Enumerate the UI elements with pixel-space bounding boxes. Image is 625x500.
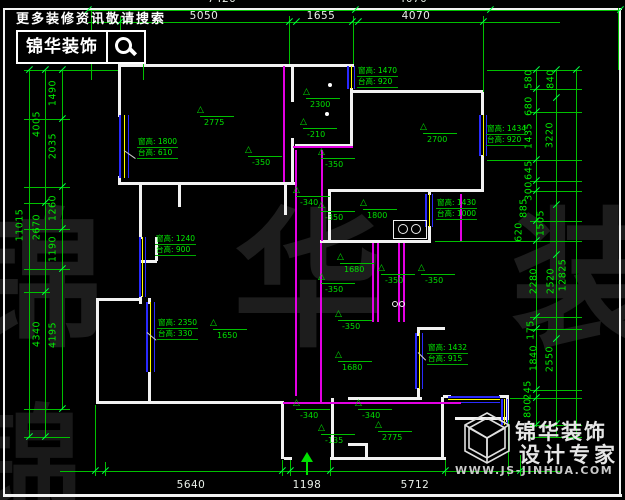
- wall-segment: [118, 64, 354, 67]
- sill-height-note: 台高: 920: [486, 135, 527, 146]
- dim-label-right: 580: [524, 69, 535, 89]
- stove-burner: [398, 224, 408, 234]
- window-note: 窗高: 1800台高: 610: [137, 137, 178, 159]
- wall-segment: [139, 182, 142, 239]
- dim-label-left: 4005: [32, 111, 43, 137]
- elevation-line: [363, 209, 397, 210]
- elevation-value: 1650: [217, 331, 237, 340]
- window-height-note: 窗高: 1430: [436, 198, 477, 209]
- dim-label-left: 2035: [48, 133, 59, 159]
- window-note: 窗高: 1434台高: 920: [486, 124, 527, 146]
- sill-height-note: 台高: 610: [137, 148, 178, 159]
- border-frame: [3, 494, 622, 497]
- dim-label-right: 2520: [546, 268, 557, 294]
- brand-name: 锦华装饰: [18, 32, 106, 62]
- window-glyph: [419, 333, 420, 389]
- dim-label-left: 4195: [48, 322, 59, 348]
- magenta-line: [372, 243, 374, 322]
- sink: [399, 301, 405, 307]
- extension-line: [530, 329, 582, 330]
- elevation-value: 2300: [310, 100, 330, 109]
- search-icon: [106, 32, 142, 62]
- extension-line: [530, 317, 582, 318]
- arrow-stem: [306, 462, 308, 475]
- elevation-value: -350: [342, 322, 360, 331]
- dim-label-left: 1190: [48, 236, 59, 262]
- wall-segment: [365, 443, 368, 460]
- dim-label-left: 1260: [48, 195, 59, 221]
- window-glyph: [124, 115, 125, 178]
- dim-label-right: 245: [523, 380, 534, 400]
- dim-label-right: 645: [524, 160, 535, 180]
- leader-line: [147, 332, 157, 340]
- extension-line: [24, 70, 118, 71]
- elevation-value: -210: [307, 130, 325, 139]
- dim-label-right: 3220: [545, 122, 556, 148]
- window-note: 窗高: 1240台高: 900: [155, 234, 196, 256]
- wall-segment: [481, 92, 484, 115]
- wall-segment: [148, 372, 151, 403]
- window-height-note: 窗高: 2350: [157, 318, 198, 329]
- window-height-note: 窗高: 1432: [427, 343, 468, 354]
- dim-label-right: 800: [523, 398, 534, 418]
- extension-line: [510, 398, 582, 399]
- wall-segment: [96, 401, 284, 404]
- wall-segment: [118, 64, 121, 117]
- cube-logo-icon: [463, 412, 511, 464]
- dim-label-top: 5050: [190, 10, 219, 22]
- wall-segment: [331, 398, 334, 460]
- elevation-triangle-icon: △: [360, 199, 367, 208]
- wall-segment: [96, 298, 142, 301]
- elevation-value: 2700: [427, 135, 447, 144]
- window-glyph: [354, 66, 356, 89]
- border-frame: [3, 8, 5, 497]
- promo-tagline: 更多装修资讯敬请搜索: [16, 8, 166, 27]
- footer-website-url: WWW.JS-JINHUA.COM: [455, 464, 613, 477]
- wall-segment: [350, 88, 353, 147]
- sill-height-note: 台高: 900: [155, 245, 196, 256]
- magnifier-handle-icon: [129, 48, 137, 56]
- elevation-line: [306, 98, 340, 99]
- elevation-triangle-icon: △: [335, 310, 342, 319]
- extension-line: [618, 8, 619, 70]
- extension-line: [24, 409, 70, 410]
- dim-label-left: 4340: [32, 321, 43, 347]
- extension-line: [289, 16, 290, 64]
- elevation-value: 1800: [367, 211, 387, 220]
- elevation-line: [423, 133, 457, 134]
- extension-line: [530, 390, 582, 391]
- wall-segment: [417, 388, 420, 398]
- dim-label-top: 4070: [402, 10, 431, 22]
- dimension-line: [536, 70, 537, 427]
- window-height-note: 窗高: 1240: [155, 234, 196, 245]
- wall-segment: [284, 182, 287, 215]
- window-glyph: [479, 115, 481, 156]
- elevation-line: [321, 158, 355, 159]
- magenta-line: [377, 243, 379, 322]
- extension-line: [24, 292, 50, 293]
- elevation-value: -340: [300, 411, 318, 420]
- dimension-line: [62, 70, 63, 409]
- elevation-triangle-icon: △: [318, 273, 325, 282]
- elevation-triangle-icon: △: [293, 186, 300, 195]
- floorplan-canvas: 锦 华 装 饰 锦 742040705050165540705640119857…: [0, 0, 625, 500]
- magenta-line: [283, 66, 285, 182]
- elevation-triangle-icon: △: [337, 253, 344, 262]
- extension-line: [435, 241, 582, 242]
- dim-label-top: 7420: [208, 0, 237, 5]
- window-height-note: 窗高: 1434: [486, 124, 527, 135]
- dim-label-right: 1505: [536, 210, 547, 236]
- sink: [392, 301, 398, 307]
- sill-height-note: 台高: 1000: [436, 209, 477, 220]
- sill-height-note: 台高: 915: [427, 354, 468, 365]
- elevation-value: -350: [325, 160, 343, 169]
- window-glyph: [145, 237, 147, 297]
- dim-label-right: 12825: [558, 259, 569, 292]
- elevation-value: -350: [325, 285, 343, 294]
- dim-label-top: 1655: [307, 10, 336, 22]
- elevation-triangle-icon: △: [210, 319, 217, 328]
- elevation-triangle-icon: △: [420, 123, 427, 132]
- elevation-line: [321, 211, 355, 212]
- window-glyph: [351, 66, 352, 89]
- window-glyph: [119, 115, 121, 178]
- elevation-line: [338, 320, 372, 321]
- window-glyph: [432, 194, 434, 227]
- elevation-line: [321, 283, 355, 284]
- dim-label-top: 4070: [399, 0, 428, 5]
- elevation-line: [248, 156, 282, 157]
- window-glyph: [146, 302, 148, 372]
- window-note: 窗高: 1432台高: 915: [427, 343, 468, 365]
- dim-label-right: 2550: [545, 346, 556, 372]
- elevation-triangle-icon: △: [303, 88, 310, 97]
- elevation-triangle-icon: △: [293, 399, 300, 408]
- wall-segment: [118, 182, 295, 185]
- elevation-value: -340: [300, 198, 318, 207]
- elevation-value: -350: [252, 158, 270, 167]
- window-glyph: [483, 115, 484, 156]
- extension-line: [24, 203, 50, 204]
- dimension-line: [29, 70, 30, 437]
- stove-burner: [411, 224, 421, 234]
- magenta-line: [320, 243, 322, 404]
- elevation-line: [321, 434, 355, 435]
- dim-label-right: 620: [514, 222, 525, 242]
- dimension-line: [576, 70, 577, 437]
- extension-line: [24, 269, 70, 270]
- dim-label-right: 175: [526, 320, 537, 340]
- elevation-line: [381, 274, 415, 275]
- elevation-triangle-icon: △: [418, 264, 425, 273]
- dim-label-left: 1490: [48, 80, 59, 106]
- elevation-value: -350: [325, 213, 343, 222]
- elevation-value: -340: [362, 411, 380, 420]
- elevation-line: [358, 409, 392, 410]
- wall-segment: [291, 64, 294, 102]
- window-glyph: [139, 237, 141, 297]
- window-height-note: 窗高: 1800: [137, 137, 178, 148]
- brand-search-box: 锦华装饰: [16, 30, 146, 64]
- extension-line: [530, 112, 582, 113]
- leader-line: [124, 150, 136, 159]
- dim-label-left: 2670: [32, 214, 43, 240]
- magenta-line: [403, 243, 405, 322]
- elevation-line: [421, 274, 455, 275]
- elevation-triangle-icon: △: [335, 351, 342, 360]
- window-glyph: [128, 115, 130, 178]
- elevation-line: [338, 361, 372, 362]
- door-hinge-dot: [328, 83, 332, 87]
- border-frame: [619, 8, 621, 497]
- wall-segment: [330, 457, 446, 460]
- dim-label-right: 1840: [529, 345, 540, 371]
- elevation-line: [303, 128, 337, 129]
- elevation-triangle-icon: △: [318, 424, 325, 433]
- wall-segment: [417, 327, 445, 330]
- window-note: 窗高: 1470台高: 920: [357, 66, 398, 88]
- wall-segment: [320, 240, 431, 243]
- elevation-triangle-icon: △: [300, 118, 307, 127]
- window-glyph: [448, 396, 500, 398]
- wall-segment: [481, 155, 484, 192]
- door-hinge-dot: [325, 112, 329, 116]
- extension-line: [483, 16, 484, 92]
- extension-line: [530, 181, 582, 182]
- elevation-value: 2775: [382, 433, 402, 442]
- extension-line: [530, 191, 582, 192]
- window-note: 窗高: 2350台高: 330: [157, 318, 198, 340]
- elevation-line: [200, 116, 234, 117]
- magenta-line: [283, 402, 461, 404]
- dim-label-bottom: 1198: [293, 479, 322, 491]
- dim-label-bottom: 5712: [401, 479, 430, 491]
- entry-direction-arrow: [301, 452, 313, 475]
- elevation-triangle-icon: △: [245, 146, 252, 155]
- elevation-value: 2775: [204, 118, 224, 127]
- dim-label-bottom: 5640: [177, 479, 206, 491]
- elevation-value: 1680: [344, 265, 364, 274]
- wall-segment: [330, 189, 483, 192]
- elevation-triangle-icon: △: [318, 148, 325, 157]
- dim-label-left: 11015: [15, 209, 26, 242]
- elevation-triangle-icon: △: [378, 264, 385, 273]
- wall-segment: [441, 397, 444, 459]
- elevation-value: -350: [385, 276, 403, 285]
- extension-line: [24, 187, 70, 188]
- elevation-value: -135: [325, 436, 343, 445]
- wall-segment: [178, 182, 181, 207]
- elevation-triangle-icon: △: [197, 106, 204, 115]
- wall-segment: [281, 401, 284, 459]
- elevation-triangle-icon: △: [318, 201, 325, 210]
- extension-line: [24, 437, 70, 438]
- window-glyph: [415, 333, 417, 389]
- elevation-value: 1680: [342, 363, 362, 372]
- sill-height-note: 台高: 330: [157, 329, 198, 340]
- elevation-line: [378, 431, 412, 432]
- dim-label-right: 680: [524, 96, 535, 116]
- window-glyph: [448, 399, 500, 400]
- elevation-line: [340, 263, 374, 264]
- window-glyph: [142, 237, 143, 297]
- wall-segment: [352, 90, 483, 93]
- arrow-head-icon: [301, 452, 313, 462]
- elevation-triangle-icon: △: [355, 399, 362, 408]
- elevation-line: [296, 196, 330, 197]
- elevation-triangle-icon: △: [375, 421, 382, 430]
- elevation-line: [296, 409, 330, 410]
- extension-line: [95, 405, 96, 476]
- dim-label-right: 2280: [529, 268, 540, 294]
- dim-label-right: 885: [519, 198, 530, 218]
- window-height-note: 窗高: 1470: [357, 66, 398, 77]
- wall-segment: [96, 298, 99, 404]
- wall-segment: [141, 260, 157, 263]
- dim-label-right: 840: [546, 69, 557, 89]
- elevation-line: [213, 329, 247, 330]
- window-glyph: [429, 194, 430, 227]
- window-glyph: [422, 333, 424, 389]
- window-glyph: [347, 66, 349, 89]
- extension-line: [353, 16, 354, 64]
- sill-height-note: 台高: 920: [357, 77, 398, 88]
- elevation-value: -350: [425, 276, 443, 285]
- window-note: 窗高: 1430台高: 1000: [436, 198, 477, 220]
- dimension-line: [45, 70, 46, 437]
- extension-line: [530, 89, 582, 90]
